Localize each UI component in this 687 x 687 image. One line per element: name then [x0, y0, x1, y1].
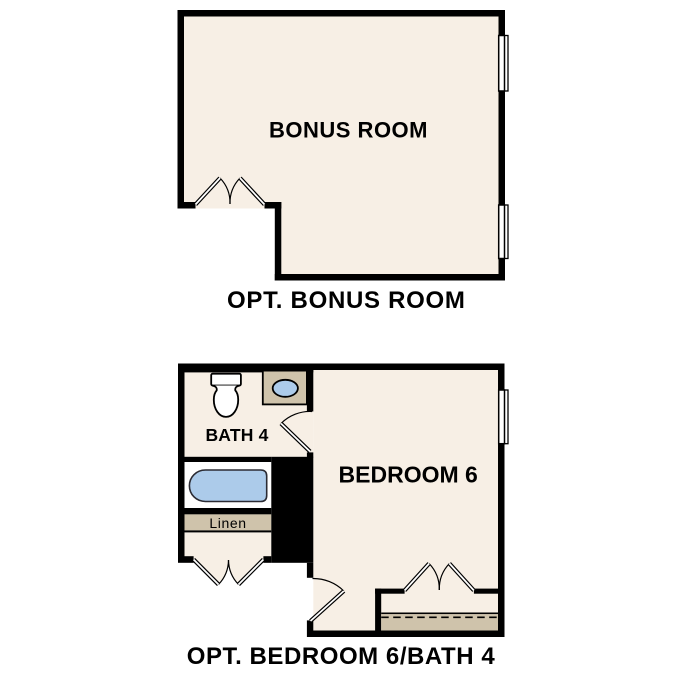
svg-text:BEDROOM 6: BEDROOM 6 — [339, 462, 478, 488]
svg-text:BONUS ROOM: BONUS ROOM — [269, 118, 428, 143]
svg-text:OPT. BONUS ROOM: OPT. BONUS ROOM — [227, 287, 466, 314]
svg-text:OPT. BEDROOM 6/BATH 4: OPT. BEDROOM 6/BATH 4 — [187, 643, 496, 670]
svg-text:BATH 4: BATH 4 — [205, 425, 268, 445]
svg-text:Linen: Linen — [209, 515, 246, 531]
